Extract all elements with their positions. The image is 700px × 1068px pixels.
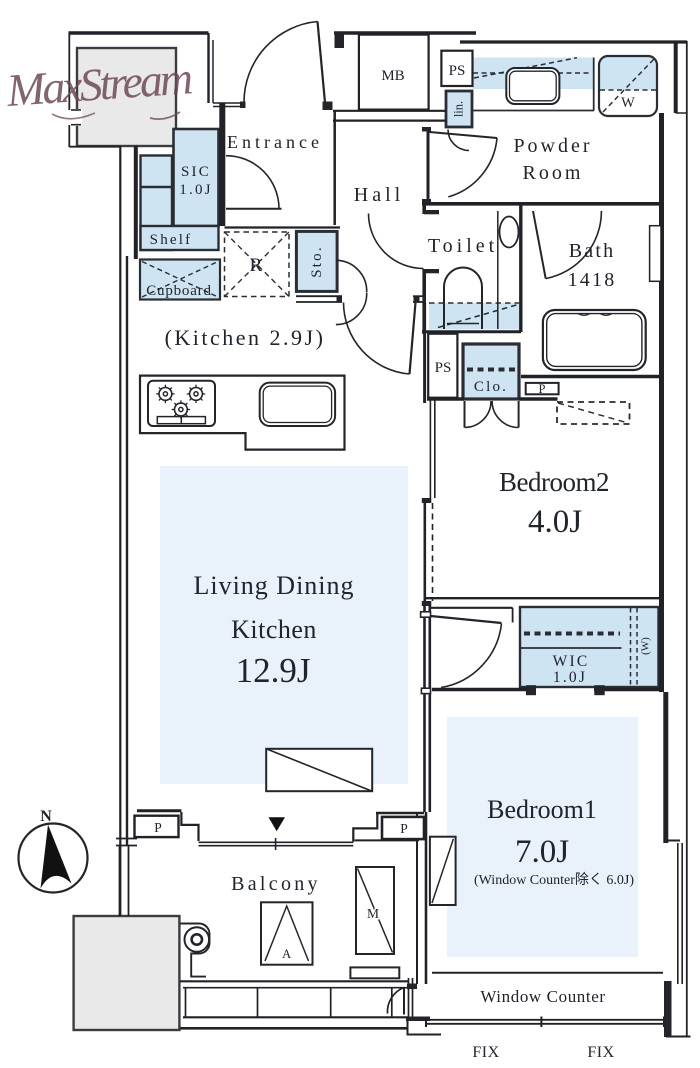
svg-text:Shelf: Shelf [150,232,193,248]
svg-text:Clo.: Clo. [474,379,508,395]
svg-text:R: R [250,255,263,276]
svg-text:(Window Counter除く 6.0J): (Window Counter除く 6.0J) [474,872,634,888]
svg-text:12.9J: 12.9J [236,651,311,690]
svg-text:W: W [621,95,635,111]
svg-text:N: N [40,808,52,825]
svg-text:P: P [539,382,546,396]
svg-text:Kitchen: Kitchen [231,615,317,644]
svg-text:Sto.: Sto. [309,245,325,278]
svg-text:4.0J: 4.0J [528,504,582,540]
svg-text:FIX: FIX [472,1044,499,1061]
svg-text:(Kitchen 2.9J): (Kitchen 2.9J) [165,325,326,350]
svg-text:MB: MB [381,68,404,84]
svg-text:Powder: Powder [513,135,592,157]
svg-text:Bath: Bath [569,240,616,262]
svg-text:P: P [154,820,162,835]
svg-text:Balcony: Balcony [231,873,321,895]
svg-text:lin.: lin. [452,101,466,117]
svg-text:(W): (W) [640,637,652,655]
svg-text:1.0J: 1.0J [553,669,587,686]
svg-text:Bedroom2: Bedroom2 [499,467,609,497]
svg-text:Hall: Hall [354,184,404,206]
svg-text:A: A [282,947,291,961]
svg-text:Toilet: Toilet [428,235,498,257]
svg-text:FIX: FIX [587,1044,614,1061]
svg-text:Living Dining: Living Dining [193,571,354,600]
svg-text:PS: PS [449,63,466,79]
svg-text:M: M [367,906,379,921]
svg-text:SIC: SIC [181,164,211,180]
svg-text:Cupboard: Cupboard [146,283,212,299]
svg-text:PS: PS [435,360,452,376]
svg-text:Window Counter: Window Counter [480,987,605,1006]
svg-text:Room: Room [523,162,584,184]
svg-text:P: P [400,821,408,836]
svg-text:Bedroom1: Bedroom1 [487,795,597,824]
svg-text:WIC: WIC [553,653,590,670]
svg-text:1.0J: 1.0J [179,182,212,198]
svg-text:1418: 1418 [568,269,617,291]
svg-text:Entrance: Entrance [227,132,323,152]
svg-text:7.0J: 7.0J [515,834,569,870]
